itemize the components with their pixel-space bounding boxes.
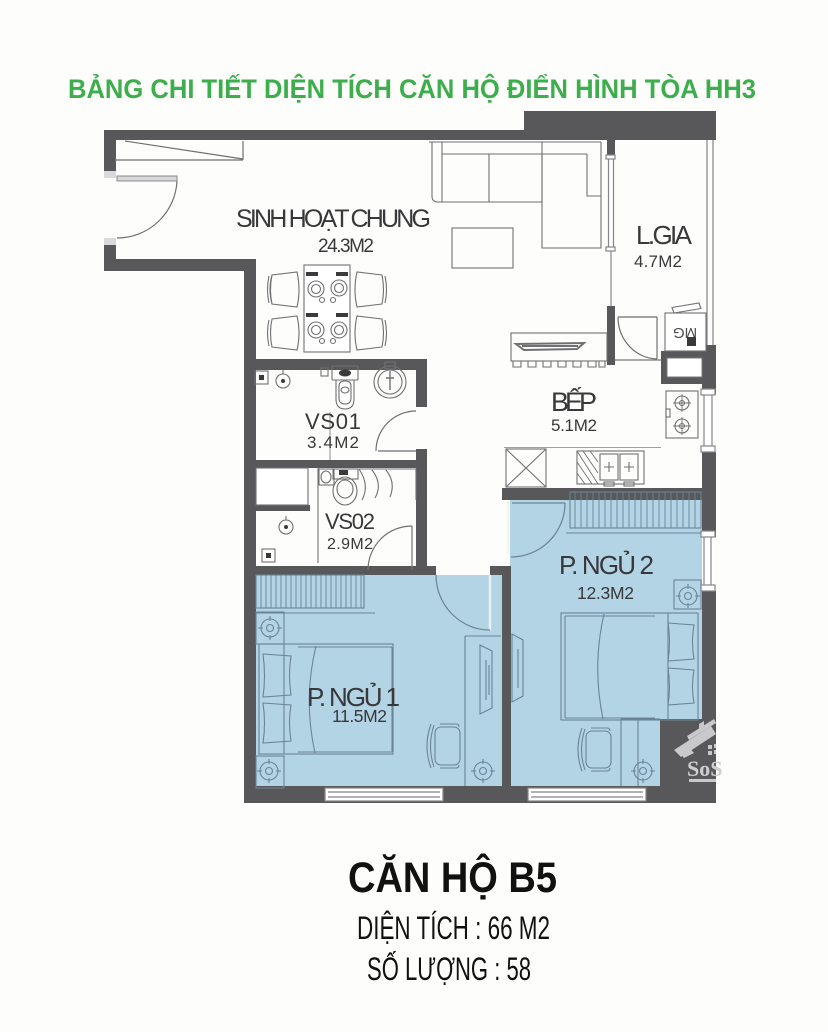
- svg-text:DIỆN TÍCH : 66 M2: DIỆN TÍCH : 66 M2: [357, 910, 550, 946]
- svg-text:3.4M2: 3.4M2: [307, 433, 359, 452]
- svg-text:11.5M2: 11.5M2: [332, 706, 387, 726]
- svg-text:L.GIA: L.GIA: [636, 220, 693, 250]
- svg-text:VS02: VS02: [325, 509, 375, 534]
- svg-text:BẢNG CHI TIẾT DIỆN TÍCH CĂN HỘ: BẢNG CHI TIẾT DIỆN TÍCH CĂN HỘ ĐIỂN HÌNH…: [68, 72, 756, 104]
- svg-text:5.1M2: 5.1M2: [551, 416, 597, 435]
- svg-text:2.9M2: 2.9M2: [327, 536, 373, 553]
- svg-text:SỐ LƯỢNG : 58: SỐ LƯỢNG : 58: [367, 951, 531, 987]
- svg-text:BẾP: BẾP: [551, 386, 597, 417]
- svg-text:VS01: VS01: [305, 409, 361, 434]
- svg-text:12.3M2: 12.3M2: [577, 583, 634, 603]
- svg-text:4.7M2: 4.7M2: [634, 252, 682, 271]
- svg-text:SoS: SoS: [687, 756, 722, 781]
- svg-text:CĂN HỘ B5: CĂN HỘ B5: [348, 853, 557, 902]
- svg-text:24.3M2: 24.3M2: [318, 236, 374, 257]
- svg-text:SINH HOẠT CHUNG: SINH HOẠT CHUNG: [236, 205, 431, 233]
- svg-text:P. NGỦ 2: P. NGỦ 2: [559, 549, 654, 580]
